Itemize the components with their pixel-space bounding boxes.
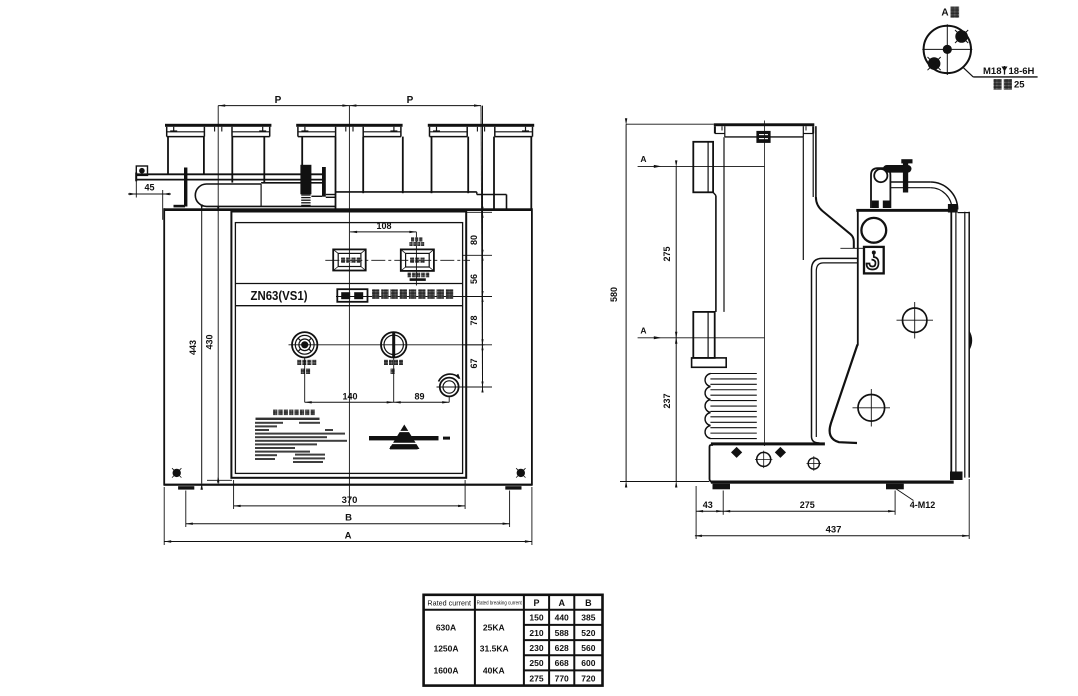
svg-text:B: B [585, 598, 592, 608]
svg-text:45: 45 [144, 183, 154, 193]
svg-text:275: 275 [800, 500, 815, 510]
svg-text:18-6H: 18-6H [1009, 66, 1035, 77]
svg-text:385: 385 [581, 613, 595, 623]
svg-text:80: 80 [469, 235, 479, 245]
svg-text:40KA: 40KA [483, 666, 505, 676]
svg-text:P: P [275, 95, 282, 106]
svg-text:275: 275 [662, 246, 672, 261]
svg-text:370: 370 [342, 495, 358, 506]
svg-text:237: 237 [662, 393, 672, 408]
svg-text:108: 108 [376, 221, 391, 231]
svg-text:67: 67 [469, 358, 479, 368]
svg-text:43: 43 [703, 500, 713, 510]
svg-text:1600A: 1600A [433, 666, 458, 676]
svg-text:89: 89 [414, 391, 424, 401]
svg-text:B: B [345, 513, 352, 524]
svg-text:440: 440 [555, 613, 569, 623]
svg-text:A: A [640, 154, 646, 164]
svg-text:720: 720 [581, 673, 595, 683]
svg-text:25KA: 25KA [483, 623, 505, 633]
svg-text:430: 430 [205, 334, 215, 349]
svg-text:A: A [640, 325, 646, 335]
svg-text:443: 443 [188, 340, 198, 355]
svg-text:ZN63(VS1): ZN63(VS1) [251, 288, 308, 303]
svg-text:Rated breaking current: Rated breaking current [477, 601, 522, 607]
svg-text:588: 588 [555, 628, 569, 638]
svg-text:P: P [533, 598, 539, 608]
svg-text:560: 560 [581, 643, 595, 653]
svg-text:230: 230 [529, 643, 543, 653]
svg-text:668: 668 [555, 658, 569, 668]
svg-text:437: 437 [826, 525, 842, 536]
svg-text:A: A [345, 530, 352, 541]
svg-text:M18: M18 [983, 66, 1001, 77]
svg-text:210: 210 [529, 628, 543, 638]
svg-text:P: P [407, 95, 414, 106]
svg-text:140: 140 [342, 391, 357, 401]
svg-text:630A: 630A [436, 623, 456, 633]
svg-text:31.5KA: 31.5KA [480, 643, 509, 653]
svg-text:25: 25 [1014, 80, 1025, 91]
svg-text:250: 250 [529, 658, 543, 668]
svg-text:56: 56 [469, 274, 479, 284]
svg-text:770: 770 [555, 673, 569, 683]
svg-text:A: A [941, 8, 948, 19]
svg-text:150: 150 [529, 613, 543, 623]
svg-text:Rated current: Rated current [427, 599, 471, 608]
svg-text:580: 580 [609, 287, 619, 302]
svg-text:275: 275 [529, 673, 543, 683]
svg-text:78: 78 [469, 315, 479, 325]
svg-text:4-M12: 4-M12 [910, 500, 936, 510]
svg-text:628: 628 [555, 643, 569, 653]
svg-text:600: 600 [581, 658, 595, 668]
svg-text:A: A [558, 598, 565, 608]
svg-text:1250A: 1250A [433, 643, 458, 653]
svg-text:520: 520 [581, 628, 595, 638]
